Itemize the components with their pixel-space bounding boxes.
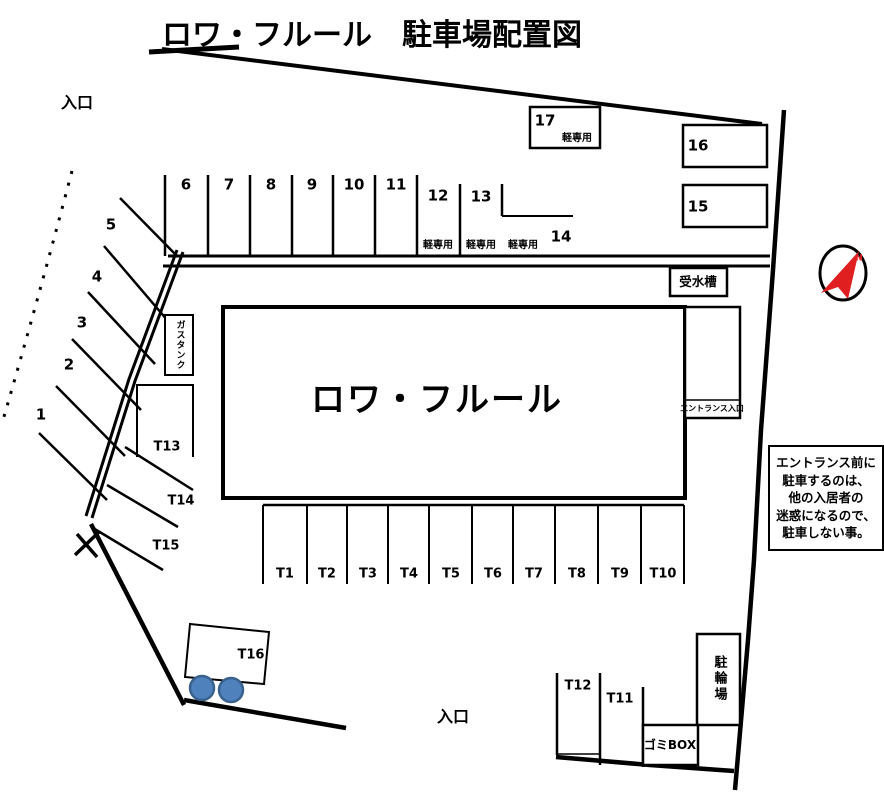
- kei-only-label-17: 軽専用: [562, 134, 592, 144]
- entrance-bottom-label: 入口: [437, 709, 469, 725]
- space-t6-label: T6: [484, 568, 502, 581]
- space-14-label: 14: [551, 230, 572, 245]
- space-13-label: 13: [471, 190, 492, 205]
- water-tank-label: 受水槽: [679, 276, 717, 289]
- notice-line: 駐車するのは、: [782, 472, 870, 490]
- space-t2-label: T2: [318, 568, 336, 581]
- parking-layout-diagram: ロワ・フルール 駐車場配置図 入口 入口 1 2 3 4 5 6 7 8 9 1…: [0, 0, 884, 793]
- road-bottom-left: [184, 700, 346, 728]
- notice-line: 迷惑になるので、: [776, 507, 876, 525]
- page-title: ロワ・フルール 駐車場配置図: [162, 10, 582, 54]
- space-divider: [88, 292, 155, 364]
- kei-only-label-12: 軽専用: [423, 241, 453, 251]
- space-3-label: 3: [77, 316, 87, 331]
- space-t7-label: T7: [525, 568, 543, 581]
- road-diagonal-outer: [86, 250, 177, 516]
- space-1-label: 1: [36, 408, 46, 423]
- parking-marker-circle: [190, 676, 214, 700]
- space-t9-label: T9: [611, 568, 629, 581]
- space-t16-label: T16: [238, 649, 265, 662]
- space-t11-label: T11: [607, 693, 634, 706]
- parking-marker-circle: [219, 678, 243, 702]
- space-11-label: 11: [386, 178, 407, 193]
- compass-north-label: N: [855, 255, 863, 264]
- kei-only-label-13: 軽専用: [466, 241, 496, 251]
- space-7-label: 7: [224, 178, 234, 193]
- space-divider: [104, 246, 168, 321]
- notice-line: エントランス前に: [776, 454, 876, 472]
- dotted-boundary: [3, 171, 72, 420]
- space-5-label: 5: [106, 218, 116, 233]
- space-t8-label: T8: [568, 568, 586, 581]
- space-t4-label: T4: [400, 568, 418, 581]
- space-t10-label: T10: [650, 568, 677, 581]
- space-9-label: 9: [307, 178, 317, 193]
- garbage-box-label: ゴミBOX: [644, 739, 696, 751]
- entrance-lobby-label: エントランス入口: [680, 405, 744, 413]
- entrance-top-label: 入口: [61, 95, 93, 111]
- space-t15-label: T15: [153, 540, 180, 553]
- space-4-label: 4: [92, 270, 102, 285]
- space-2-label: 2: [64, 358, 74, 373]
- space-12-label: 12: [428, 189, 449, 204]
- space-t1-label: T1: [276, 568, 294, 581]
- kei-only-label-14: 軽専用: [508, 241, 538, 251]
- space-6-label: 6: [181, 178, 191, 193]
- building-wing: [685, 307, 740, 418]
- road-top-boundary: [162, 49, 762, 124]
- space-t13-label: T13: [154, 441, 181, 454]
- space-t14-label: T14: [168, 495, 195, 508]
- space-divider: [39, 433, 107, 500]
- space-15-label: 15: [688, 200, 709, 215]
- bicycle-parking-label: 駐輪場: [713, 655, 726, 703]
- building-name: ロワ・フルール: [311, 383, 563, 417]
- space-8-label: 8: [266, 178, 276, 193]
- space-divider: [120, 198, 178, 257]
- space-16-label: 16: [688, 139, 709, 154]
- space-t3-label: T3: [359, 568, 377, 581]
- space-t12-label: T12: [565, 680, 592, 693]
- space-10-label: 10: [344, 178, 365, 193]
- space-17-label: 17: [535, 114, 556, 129]
- space-t5-label: T5: [442, 568, 460, 581]
- notice-box: エントランス前に 駐車するのは、 他の入居者の 迷惑になるので、 駐車しない事。: [768, 445, 884, 551]
- gas-tank-label: ガスタンク: [175, 320, 184, 370]
- notice-line: 駐車しない事。: [782, 524, 870, 542]
- notice-line: 他の入居者の: [788, 489, 863, 507]
